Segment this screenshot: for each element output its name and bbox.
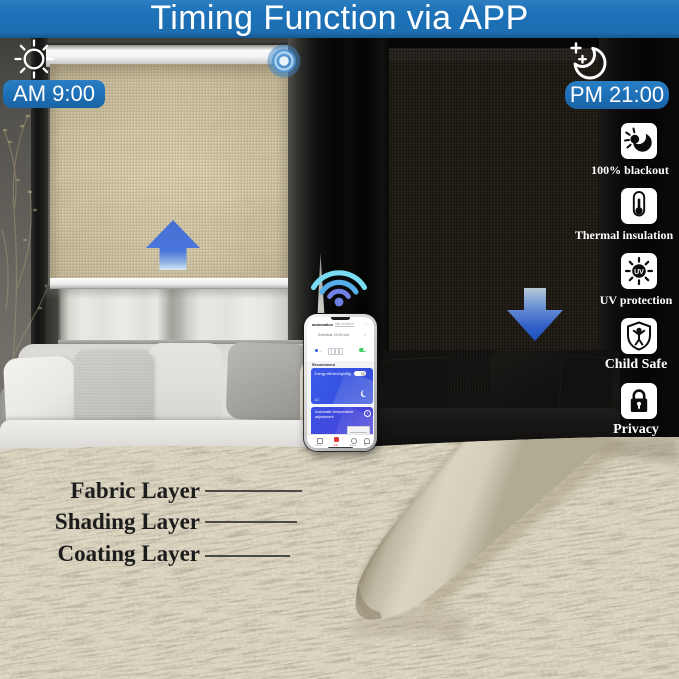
svg-text:UV: UV (634, 269, 644, 276)
